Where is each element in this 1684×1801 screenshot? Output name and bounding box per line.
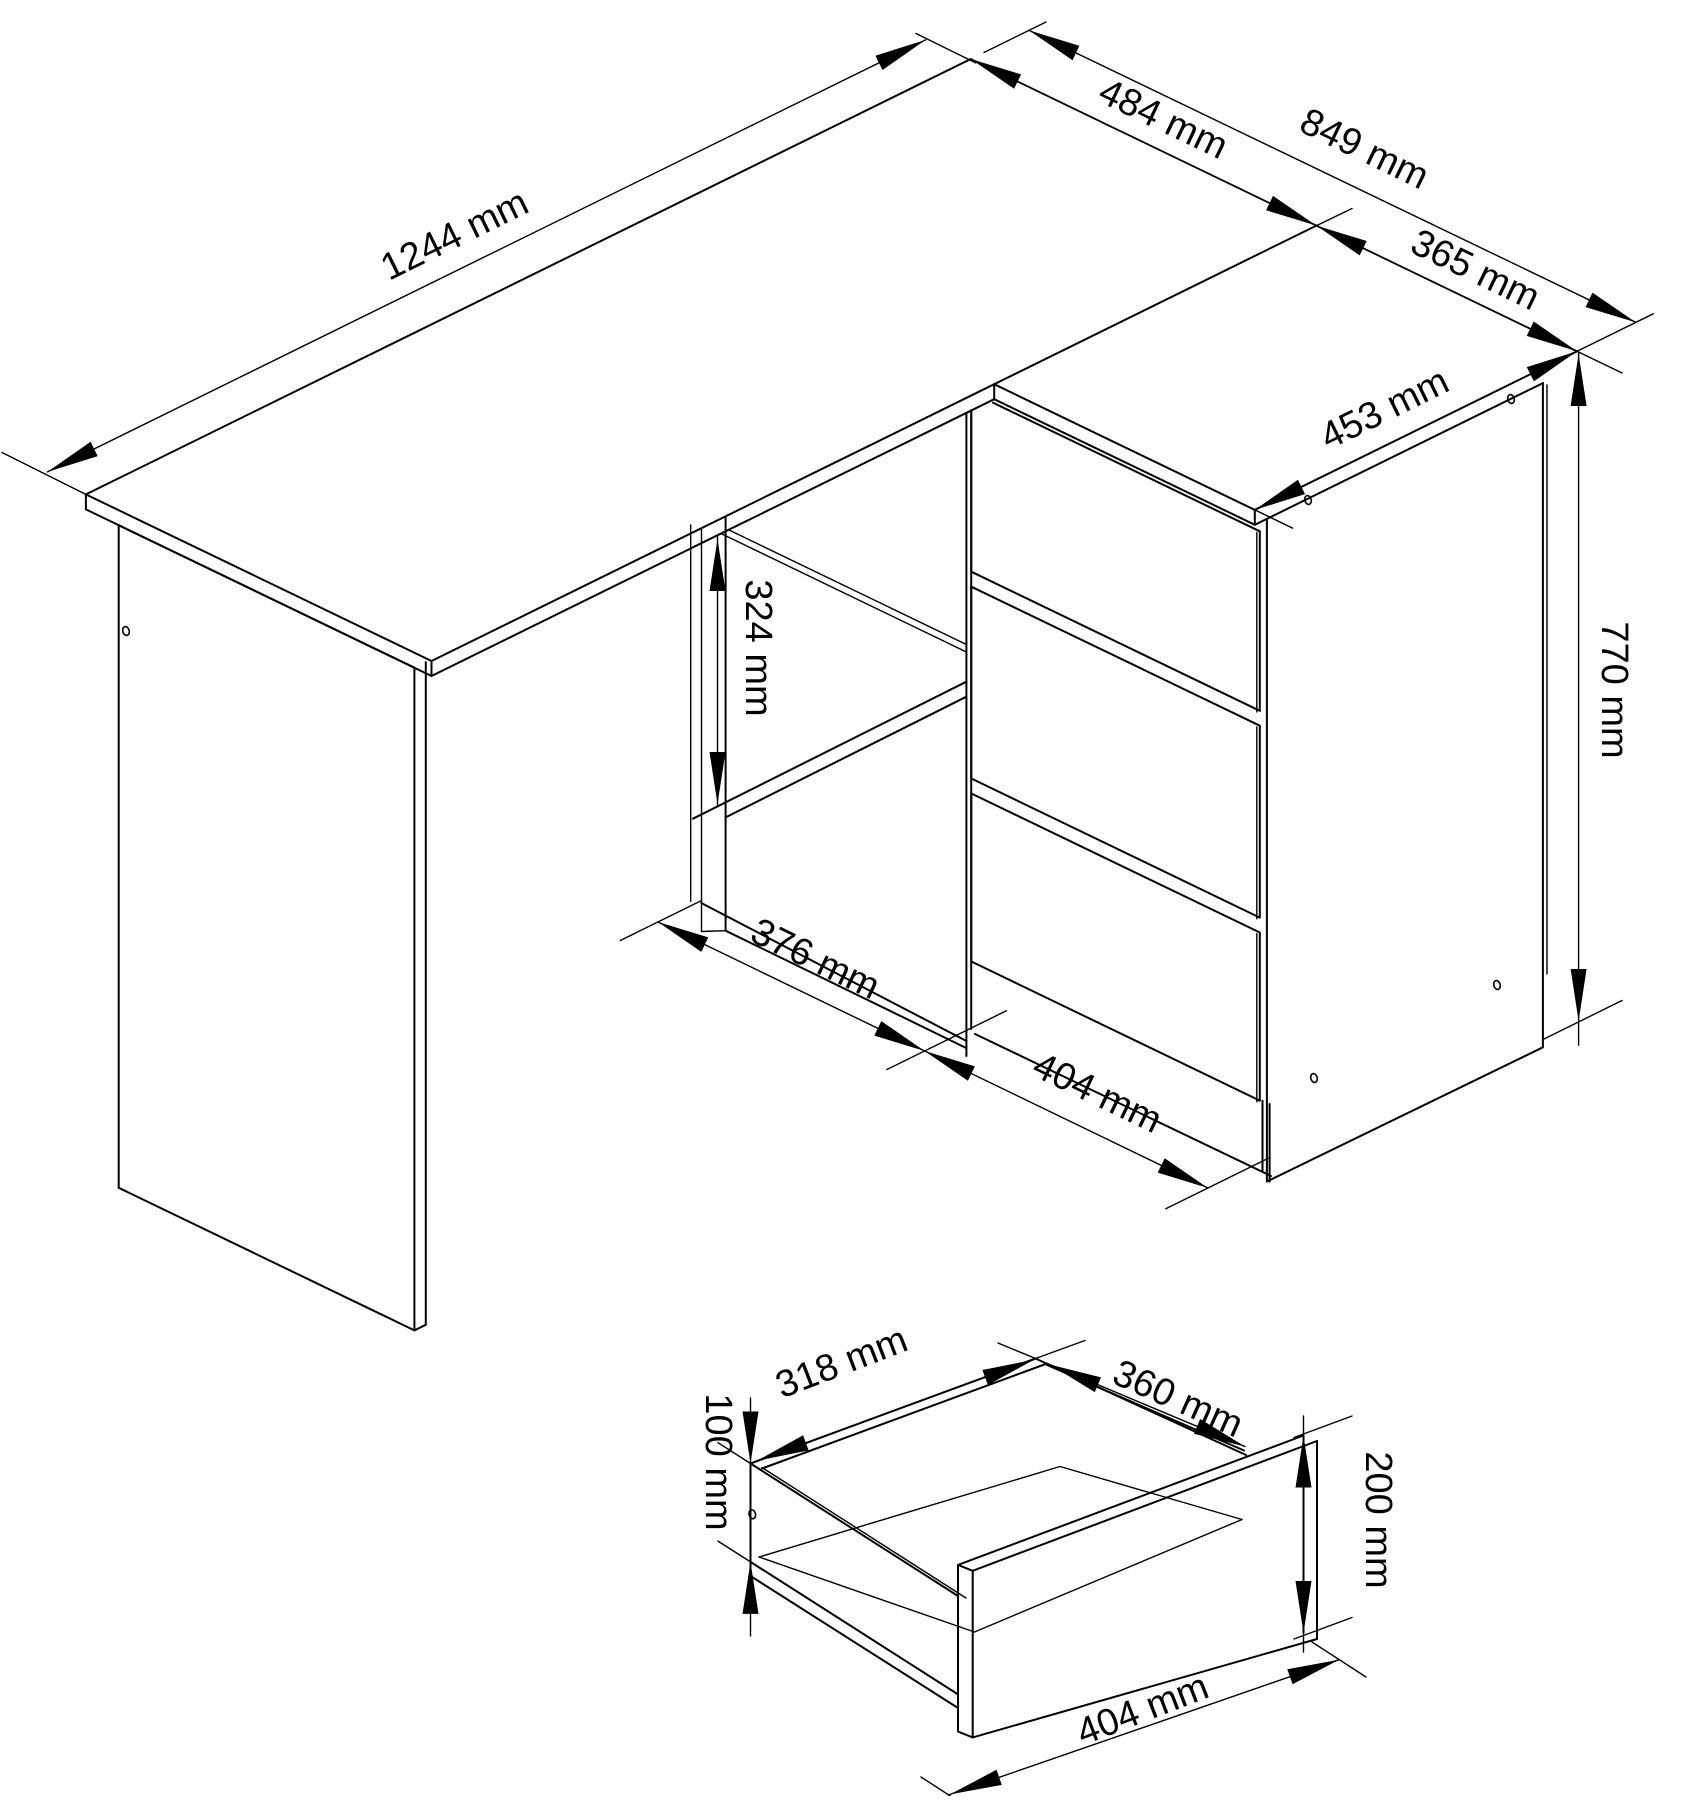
svg-text:770 mm: 770 mm	[1593, 621, 1635, 758]
svg-text:100 mm: 100 mm	[697, 1393, 739, 1530]
svg-text:324 mm: 324 mm	[737, 579, 779, 716]
svg-text:200 mm: 200 mm	[1357, 1451, 1399, 1588]
